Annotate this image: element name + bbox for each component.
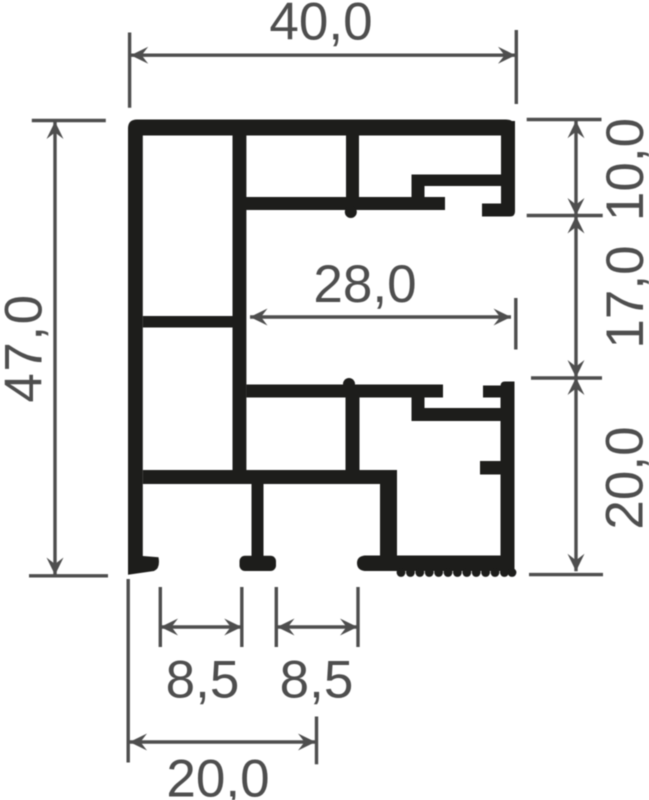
svg-text:8,5: 8,5 (166, 651, 240, 710)
svg-text:40,0: 40,0 (269, 0, 372, 52)
svg-text:20,0: 20,0 (166, 750, 269, 800)
svg-text:10,0: 10,0 (596, 118, 649, 221)
svg-text:8,5: 8,5 (280, 651, 354, 710)
svg-text:20,0: 20,0 (596, 426, 649, 529)
svg-text:47,0: 47,0 (0, 293, 54, 402)
svg-text:17,0: 17,0 (596, 245, 649, 348)
svg-text:28,0: 28,0 (313, 255, 416, 314)
